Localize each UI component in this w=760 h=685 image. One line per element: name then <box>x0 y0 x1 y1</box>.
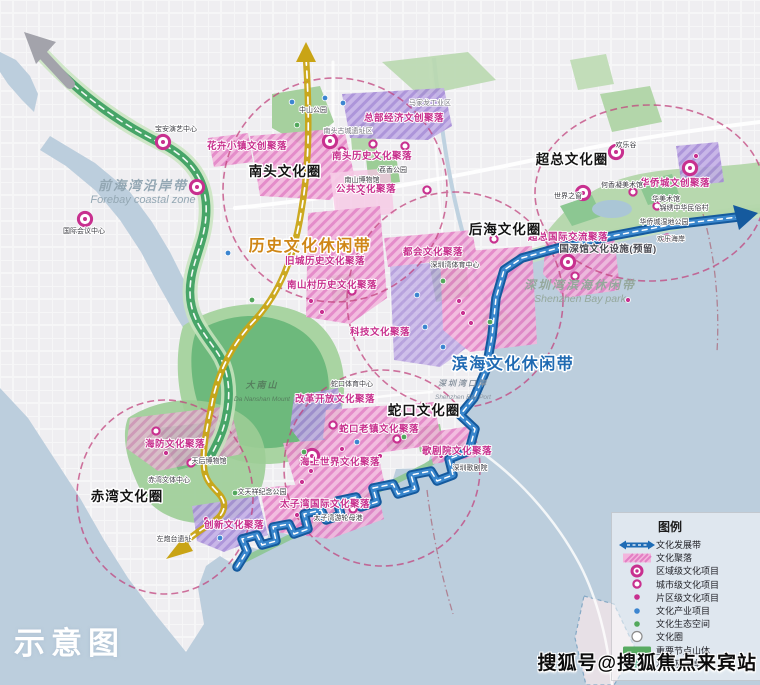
legend-row: 文化发展带 <box>618 538 754 551</box>
marker-industry <box>322 95 328 101</box>
marker-eco <box>440 278 446 284</box>
city-project-icon <box>618 578 656 590</box>
legend-row: 区域级文化项目 <box>618 564 754 577</box>
watermark: 搜狐号@搜狐焦点来宾站 <box>537 648 757 675</box>
legend-row: 文化聚落 <box>618 551 754 564</box>
marker-city <box>329 421 336 428</box>
place-label: 欢乐海岸 <box>657 234 685 243</box>
place-label: 欢乐谷 <box>616 140 637 149</box>
marker-industry <box>217 535 223 541</box>
place-label: 蛇口体育中心 <box>331 379 373 388</box>
park-patch <box>570 54 614 90</box>
legend-label: 城市级文化项目 <box>656 578 719 591</box>
place-label: 南山博物馆 <box>345 175 380 184</box>
marker-eco <box>249 297 255 303</box>
area-label-en: Forebay coastal zone <box>90 194 195 206</box>
place-label: 荔香公园 <box>379 165 407 174</box>
place-label: 何香凝美术馆 <box>601 180 643 189</box>
marker-industry <box>289 99 295 105</box>
culture-circle-label: 赤湾文化圈 <box>91 488 164 504</box>
cluster-swatch-icon <box>618 552 656 564</box>
legend-row: 城市级文化项目 <box>618 578 754 591</box>
marker-city <box>152 427 159 434</box>
schematic-stamp: 示意图 <box>14 618 125 663</box>
marker-city <box>629 188 636 195</box>
eco-space-icon <box>618 619 656 629</box>
legend-label: 文化发展带 <box>656 538 701 551</box>
place-label: 文天祥纪念公园 <box>238 487 287 496</box>
cluster-label: 歌剧院文化聚落 <box>422 445 492 457</box>
legend-label: 文化生态空间 <box>656 617 710 630</box>
legend-row: 文化生态空间 <box>618 617 754 630</box>
place-label: 世界之窗 <box>554 191 582 200</box>
marker-regional-dot <box>195 185 199 189</box>
cluster-label: 国深馆文化设施(预留) <box>559 243 656 255</box>
marker-industry <box>340 100 346 106</box>
area-label-en: Shenzhen Bay Port <box>435 394 492 401</box>
place-label: 太子湾游轮母港 <box>314 513 363 522</box>
marker-regional-dot <box>161 140 165 144</box>
marker-district <box>457 299 462 304</box>
area-label: 深圳湾滨海休闲带 <box>524 278 636 292</box>
culture-circle-label: 南头文化圈 <box>249 163 322 179</box>
marker-district <box>626 298 631 303</box>
cluster-label: 旧城历史文化聚落 <box>285 255 365 267</box>
marker-district <box>295 513 300 518</box>
planning-map-stage: 前海湾沿岸带Forebay coastal zone深圳湾滨海休闲带Shenzh… <box>0 0 760 685</box>
marker-eco <box>301 449 307 455</box>
area-label: 深圳湾口岸 <box>438 378 488 388</box>
culture-circle-label: 超总文化圈 <box>535 151 609 167</box>
marker-district <box>320 310 325 315</box>
marker-district <box>164 451 169 456</box>
legend-label: 文化圈 <box>656 630 683 643</box>
marker-district <box>461 311 466 316</box>
belt-label: 滨海文化休闲带 <box>452 354 575 373</box>
place-label: 华美术馆 <box>652 194 680 203</box>
place-label: 宝安演艺中心 <box>155 124 197 133</box>
legend-title: 图例 <box>658 518 754 535</box>
place-label: 华侨城湿地公园 <box>640 217 689 226</box>
marker-district <box>309 469 314 474</box>
regional-project-icon <box>618 564 656 578</box>
culture-circle-label: 后海文化圈 <box>469 221 542 237</box>
cluster-label: 花卉小镇文创聚落 <box>207 140 287 152</box>
culture-circle-icon <box>618 630 656 643</box>
marker-district <box>340 447 345 452</box>
marker-city <box>369 140 376 147</box>
place-label: 国际会议中心 <box>63 226 105 235</box>
marker-district <box>694 154 699 159</box>
cluster-label: 改革开放文化聚落 <box>295 393 375 405</box>
place-label: 深圳歌剧院 <box>453 463 488 472</box>
cluster-label: 海上世界文化聚落 <box>300 456 380 468</box>
area-label: 前海湾沿岸带 <box>98 178 189 193</box>
cluster-label: 创新文化聚落 <box>203 519 264 531</box>
belt-label: 历史文化休闲带 <box>249 236 372 255</box>
legend-row: 片区级文化项目 <box>618 591 754 604</box>
marker-industry <box>354 439 360 445</box>
marker-eco <box>294 122 300 128</box>
place-label: 天后博物馆 <box>192 456 227 465</box>
legend-row: 文化产业项目 <box>618 604 754 617</box>
cluster-label: 蛇口老镇文化聚落 <box>339 423 419 435</box>
marker-regional-dot <box>566 260 570 264</box>
place-label: 锦绣中华民俗村 <box>660 203 709 212</box>
culture-circle-label: 蛇口文化圈 <box>388 402 461 418</box>
marker-eco <box>401 434 407 440</box>
place-label: 左炮台遗址 <box>157 534 192 543</box>
area-label: 大南山 <box>245 380 278 390</box>
place-label: 南头古城遗址区 <box>324 126 373 135</box>
oct-wetland-lake <box>592 200 632 218</box>
marker-industry <box>225 250 231 256</box>
marker-regional-dot <box>328 139 332 143</box>
place-label: 马家龙工业区 <box>409 98 451 107</box>
marker-regional-dot <box>614 150 618 154</box>
marker-regional-dot <box>83 217 87 221</box>
place-label: 中山公园 <box>299 105 327 114</box>
legend-label: 文化产业项目 <box>656 604 710 617</box>
marker-regional-dot <box>688 166 692 170</box>
place-label: 深圳湾体育中心 <box>431 260 480 269</box>
industry-project-icon <box>618 606 656 616</box>
legend-label: 片区级文化项目 <box>656 591 719 604</box>
cluster-label: 太子湾国际文化聚落 <box>280 498 370 510</box>
cluster-label: 科技文化聚落 <box>350 326 410 338</box>
cluster-label: 华侨城文创聚落 <box>640 177 710 189</box>
legend-row: 文化圈 <box>618 630 754 643</box>
cluster-label: 总部经济文创聚落 <box>364 112 444 124</box>
marker-district <box>469 321 474 326</box>
marker-city <box>393 435 400 442</box>
marker-industry <box>414 292 420 298</box>
marker-district <box>309 299 314 304</box>
development-belt-icon <box>618 539 656 551</box>
marker-city <box>401 142 408 149</box>
area-label-en: Shenzhen Bay park <box>534 293 626 305</box>
area-label-en: Da Nanshan Mount <box>234 396 291 403</box>
marker-eco <box>487 319 493 325</box>
legend-label: 区域级文化项目 <box>656 564 719 577</box>
marker-city <box>423 186 430 193</box>
place-label: 赤湾文体中心 <box>148 475 190 484</box>
cluster-label: 公共文化聚落 <box>336 183 396 195</box>
cluster-label: 南山村历史文化聚落 <box>287 279 377 291</box>
district-project-icon <box>618 592 656 602</box>
legend-label: 文化聚落 <box>656 551 692 564</box>
marker-district <box>300 480 305 485</box>
cluster-label: 海防文化聚落 <box>145 438 205 450</box>
marker-industry <box>440 344 446 350</box>
marker-industry <box>422 324 428 330</box>
cluster-label: 南头历史文化聚落 <box>332 150 412 162</box>
cluster-label: 都会文化聚落 <box>402 246 463 258</box>
